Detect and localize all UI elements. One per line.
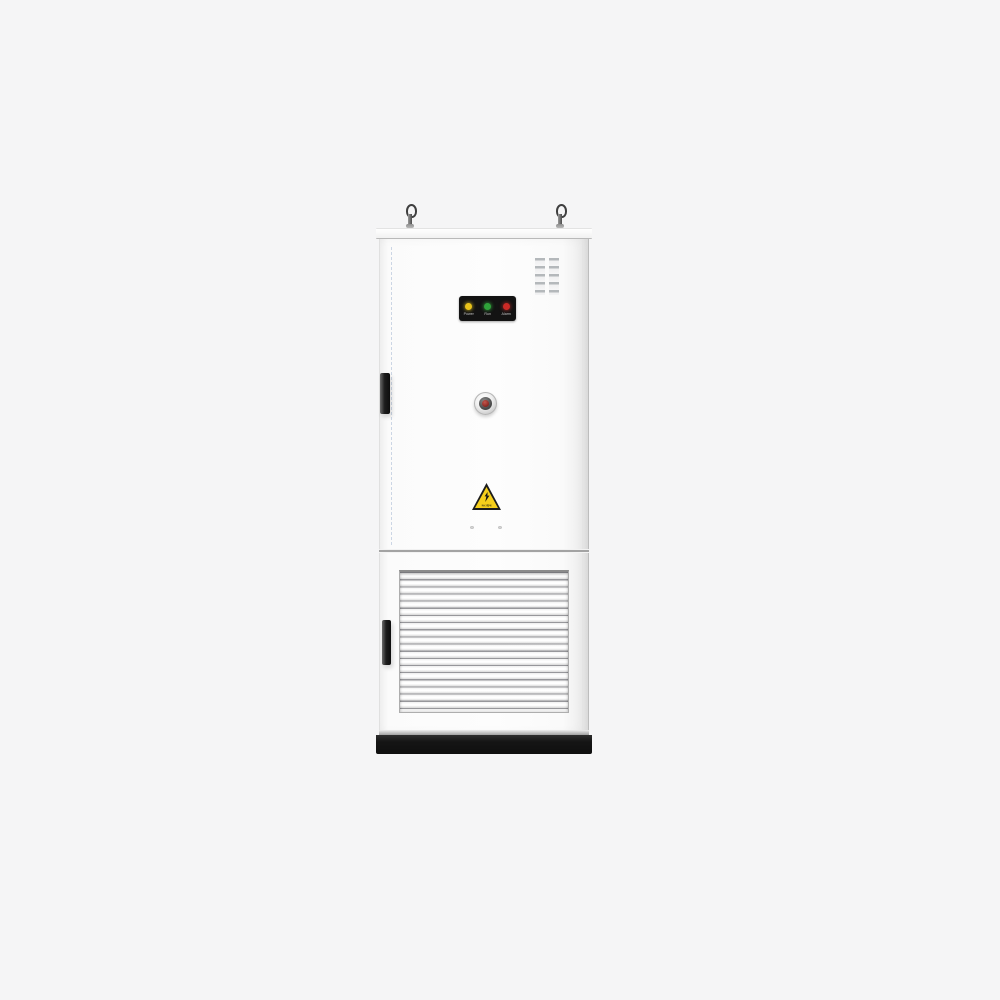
power-led-label: Power <box>463 311 473 316</box>
screw-dot <box>470 526 474 529</box>
round-button-center <box>482 400 489 407</box>
warning-caption: 当心触电 <box>478 504 496 507</box>
lightning-bolt-icon <box>484 492 490 502</box>
lifting-eye-right <box>554 204 566 229</box>
door-divider-seam <box>379 549 589 553</box>
upper-door-seam <box>391 247 392 545</box>
alarm-led-label: Alarm <box>502 311 511 316</box>
power-led-icon <box>465 303 472 310</box>
round-button <box>474 392 497 415</box>
indicator-panel: Power Run Alarm <box>459 296 516 321</box>
vent-slot-column <box>549 258 559 295</box>
cabinet-right-edge <box>582 240 583 732</box>
screw-dot <box>498 526 502 529</box>
run-led-icon <box>484 303 491 310</box>
high-voltage-warning-sticker: 当心触电 <box>472 483 501 510</box>
top-vent-grid <box>535 258 559 295</box>
alarm-led-group: Alarm <box>497 296 516 321</box>
product-photo: Power Run Alarm 当心触电 <box>0 0 1000 1000</box>
lower-door-handle <box>382 620 391 665</box>
upper-door-handle <box>380 373 390 414</box>
run-led-label: Run <box>484 311 491 316</box>
alarm-led-icon <box>503 303 510 310</box>
louver-grille <box>399 570 569 713</box>
cabinet-plinth <box>376 735 592 754</box>
run-led-group: Run <box>478 296 497 321</box>
lifting-eye-left <box>404 204 416 229</box>
vent-slot-column <box>535 258 545 295</box>
power-led-group: Power <box>459 296 478 321</box>
cabinet-top-cap <box>376 228 592 239</box>
